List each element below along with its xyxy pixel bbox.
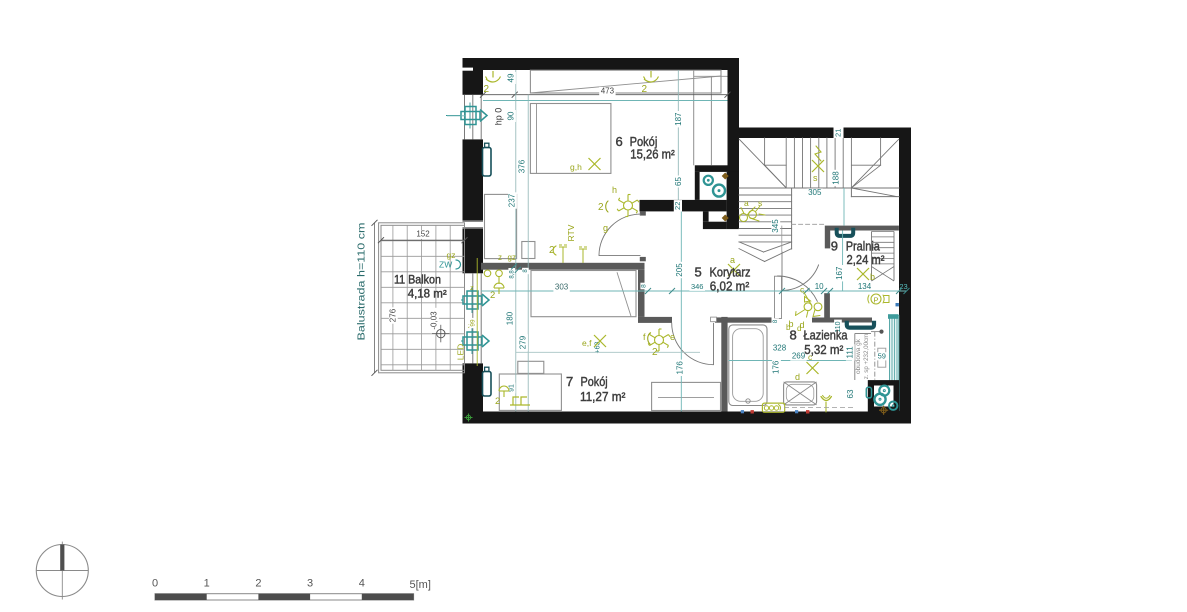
svg-text:176: 176 <box>676 361 685 375</box>
svg-text:2: 2 <box>549 245 555 256</box>
svg-text:10: 10 <box>815 282 824 291</box>
svg-text:65: 65 <box>674 177 683 186</box>
svg-text:9: 9 <box>831 239 838 254</box>
svg-text:152: 152 <box>416 230 430 239</box>
svg-text:a: a <box>744 198 749 208</box>
svg-text:8,8: 8,8 <box>509 270 515 279</box>
svg-text:91: 91 <box>509 384 516 392</box>
svg-text:99: 99 <box>470 319 477 327</box>
svg-text:obudowa gk: obudowa gk <box>855 338 862 374</box>
svg-text:6,02 m²: 6,02 m² <box>710 279 749 293</box>
svg-text:s: s <box>758 198 762 208</box>
svg-text:e,f: e,f <box>582 338 592 348</box>
svg-text:d: d <box>797 324 801 333</box>
svg-text:2: 2 <box>484 84 490 95</box>
svg-text:328: 328 <box>773 344 787 353</box>
svg-text:2: 2 <box>255 577 261 589</box>
svg-text:180: 180 <box>506 311 515 325</box>
svg-text:g: g <box>603 223 608 233</box>
svg-text:b: b <box>870 272 875 282</box>
svg-text:h: h <box>612 185 617 195</box>
svg-text:303: 303 <box>555 283 569 292</box>
svg-text:4: 4 <box>359 577 365 589</box>
svg-text:z: z <box>498 253 502 262</box>
svg-text:473: 473 <box>601 86 615 95</box>
svg-text:2: 2 <box>598 202 604 213</box>
svg-text:z: z <box>470 283 474 292</box>
svg-text:8: 8 <box>790 327 797 342</box>
svg-text:90: 90 <box>507 111 516 120</box>
svg-text:-0,03: -0,03 <box>430 311 439 330</box>
svg-text:305: 305 <box>808 188 822 197</box>
svg-text:s: s <box>813 173 818 183</box>
svg-text:0: 0 <box>152 577 158 589</box>
svg-text:hp 0: hp 0 <box>493 108 503 126</box>
svg-text:11,27 m²: 11,27 m² <box>580 390 625 404</box>
svg-text:5[m]: 5[m] <box>410 579 431 591</box>
svg-text:P: P <box>873 296 878 305</box>
svg-text:346: 346 <box>691 282 704 291</box>
svg-text:134: 134 <box>858 282 872 291</box>
svg-text:376: 376 <box>518 159 527 173</box>
svg-text:gz: gz <box>447 250 456 260</box>
svg-text:205: 205 <box>675 263 684 277</box>
svg-text:e: e <box>670 332 675 342</box>
svg-text:2,24 m²: 2,24 m² <box>847 253 885 267</box>
svg-text:LED: LED <box>455 344 465 361</box>
svg-text:167: 167 <box>835 266 844 280</box>
svg-text:7: 7 <box>566 374 573 389</box>
svg-text:6: 6 <box>616 134 623 149</box>
svg-text:2: 2 <box>490 290 495 301</box>
svg-text:237: 237 <box>508 193 517 207</box>
svg-text:gz: gz <box>508 253 516 262</box>
svg-text:1: 1 <box>204 577 210 589</box>
svg-text:5: 5 <box>695 265 702 280</box>
svg-text:2: 2 <box>642 84 648 95</box>
svg-text:Pralnia: Pralnia <box>846 239 881 254</box>
svg-text:63: 63 <box>846 389 855 398</box>
svg-text:345: 345 <box>771 219 780 233</box>
svg-text:15,26 m²: 15,26 m² <box>630 148 675 162</box>
svg-text:59: 59 <box>878 351 886 360</box>
svg-text:49: 49 <box>507 73 516 82</box>
svg-text:Pokój: Pokój <box>581 374 608 389</box>
svg-text:2: 2 <box>652 347 658 358</box>
svg-text:176: 176 <box>772 360 781 374</box>
svg-text:22: 22 <box>673 202 682 210</box>
svg-text:187: 187 <box>674 112 683 126</box>
svg-text:2: 2 <box>495 396 500 407</box>
svg-text:Balustrada h=110 cm: Balustrada h=110 cm <box>355 222 367 340</box>
svg-text:11 Balkon: 11 Balkon <box>394 274 441 286</box>
svg-text:g,h: g,h <box>570 162 582 172</box>
svg-text:279: 279 <box>519 335 528 349</box>
svg-text:Korytarz: Korytarz <box>710 265 751 280</box>
svg-text:d: d <box>795 372 800 382</box>
svg-text:188: 188 <box>832 171 841 185</box>
svg-text:3: 3 <box>307 577 313 589</box>
svg-text:4,18 m²: 4,18 m² <box>408 289 447 301</box>
svg-text:21: 21 <box>833 129 842 137</box>
svg-text:111: 111 <box>845 346 854 359</box>
svg-text:5,32 m²: 5,32 m² <box>804 343 843 357</box>
svg-text:8: 8 <box>641 284 648 288</box>
svg-text:276: 276 <box>388 308 397 322</box>
svg-text:RTV: RTV <box>566 224 576 241</box>
svg-text:ZW: ZW <box>439 260 452 270</box>
svg-text:z. sp +232,00cm: z. sp +232,00cm <box>863 334 870 380</box>
svg-text:Łazienka: Łazienka <box>804 327 849 342</box>
svg-text:a: a <box>730 255 735 265</box>
